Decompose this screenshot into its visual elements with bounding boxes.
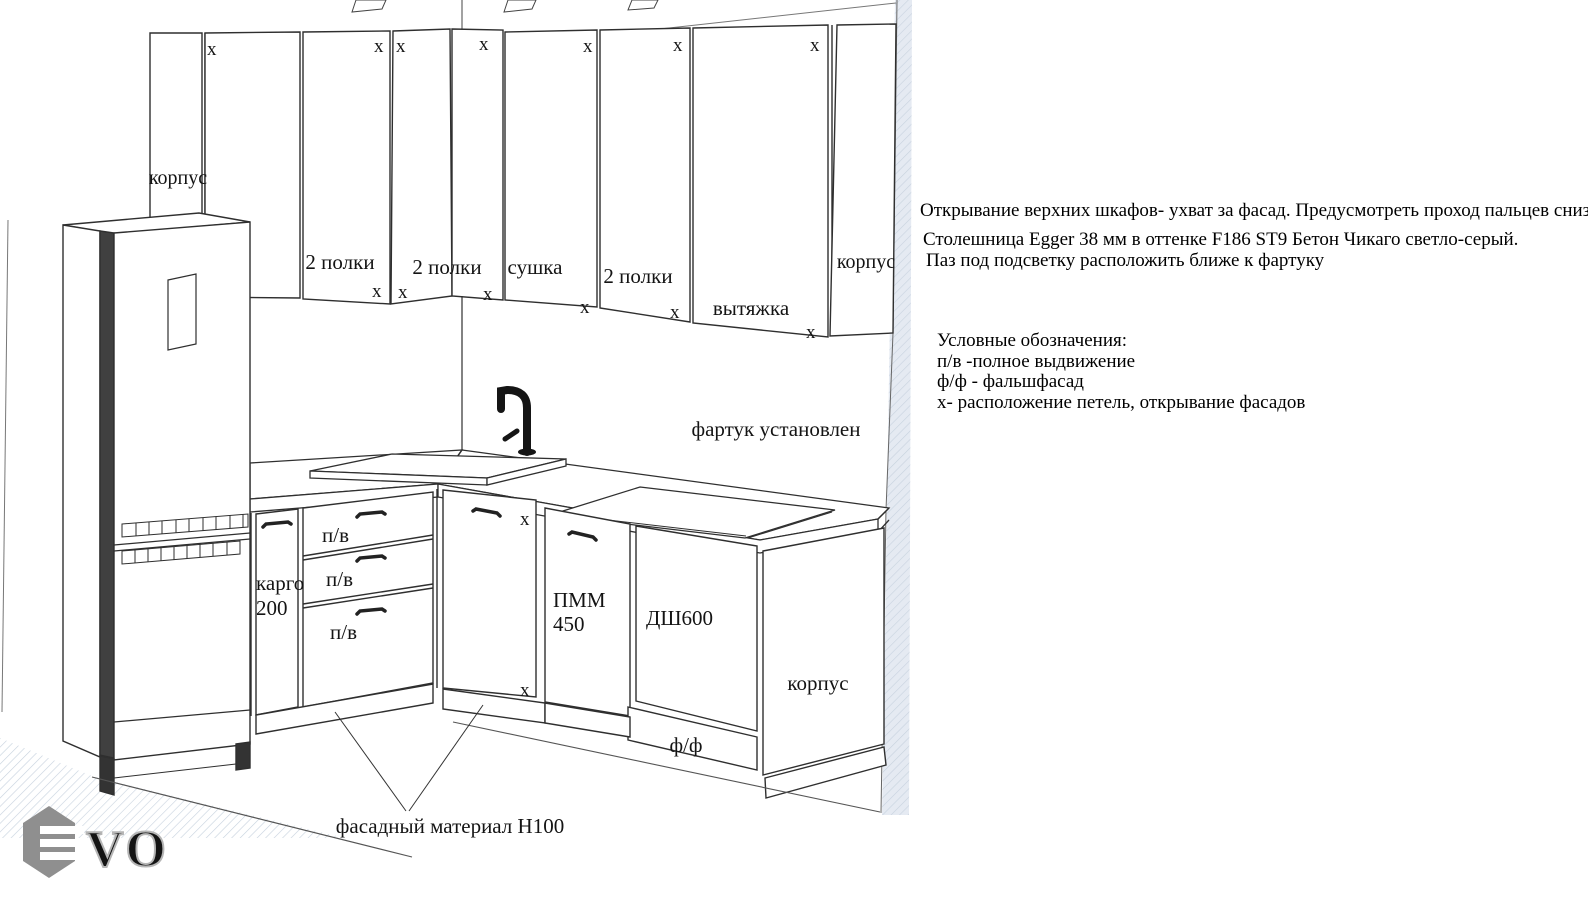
ceiling-fixture — [504, 0, 536, 12]
hinge-mark-icon: x — [673, 35, 683, 56]
upper-right-side-panel — [830, 24, 896, 336]
label-backsplash: фартук установлен — [692, 417, 861, 441]
ceiling-fixture — [352, 0, 386, 12]
legend-item-x: х- расположение петель, открывание фасад… — [937, 393, 1305, 414]
label-2shelves-right: 2 полки — [603, 264, 672, 288]
logo-vo-text: VO — [86, 821, 169, 878]
hinge-mark-icon: x — [396, 36, 406, 57]
kitchen-drawing-page: x x x x x x x x x x x x x корпус 2 полки… — [0, 0, 1588, 900]
label-false-front: ф/ф — [669, 733, 702, 757]
label-end-panel: корпус — [787, 671, 848, 695]
legend-item-pv: п/в -полное выдвижение — [937, 352, 1305, 373]
hinge-mark-icon: x — [372, 281, 382, 302]
note-countertop: Столешница Egger 38 мм в оттенке F186 ST… — [923, 229, 1518, 251]
label-cargo: карго — [256, 571, 304, 595]
fridge-foot — [236, 742, 250, 770]
label-cargo-size: 200 — [256, 596, 288, 620]
hinge-mark-icon: x — [520, 509, 530, 530]
hinge-mark-icon: x — [479, 34, 489, 55]
label-upper-right-panel: корпус — [837, 251, 895, 273]
fridge-side — [63, 225, 100, 757]
label-upper-left-panel: корпус — [149, 167, 207, 189]
fridge — [63, 213, 250, 795]
label-oven: ДШ600 — [646, 606, 713, 630]
kitchen-diagram: x x x x x x x x x x x x x корпус 2 полки… — [0, 0, 1588, 900]
faucet-icon — [501, 390, 536, 456]
hood-door — [693, 25, 828, 337]
label-drawer-pv: п/в — [330, 620, 357, 644]
hinge-mark-icon: x — [207, 39, 217, 60]
fridge-display — [168, 274, 196, 350]
hinge-mark-icon: x — [398, 282, 408, 303]
legend-block: Условные обозначения: п/в -полное выдвиж… — [937, 331, 1305, 413]
legend-item-ff: ф/ф - фальшфасад — [937, 372, 1305, 393]
label-hood: вытяжка — [713, 296, 790, 320]
label-drawer-pv: п/в — [322, 523, 349, 547]
label-dishwasher: ПММ — [553, 588, 606, 612]
ceiling-fixture — [628, 0, 658, 10]
hinge-mark-icon: x — [810, 35, 820, 56]
label-dishwasher-size: 450 — [553, 612, 585, 636]
plinth-callout: фасадный материал Н100 — [335, 705, 564, 838]
hinge-mark-icon: x — [374, 36, 384, 57]
hinge-mark-icon: x — [580, 297, 590, 318]
label-drawer-pv: п/в — [326, 567, 353, 591]
note-lighting-groove: Паз под подсветку расположить ближе к фа… — [926, 250, 1324, 272]
legend-title: Условные обозначения: — [937, 331, 1305, 352]
label-2shelves: 2 полки — [305, 250, 374, 274]
note-upper-cabinets: Открывание верхних шкафов- ухват за фаса… — [920, 200, 1588, 222]
hinge-mark-icon: x — [806, 322, 816, 343]
fridge-edge-stripe — [100, 231, 114, 758]
lower-end-panel — [763, 528, 884, 775]
hinge-mark-icon: x — [670, 302, 680, 323]
label-facade-material: фасадный материал Н100 — [336, 814, 564, 838]
label-dryer: сушка — [508, 255, 564, 279]
fridge-foot — [100, 756, 114, 795]
label-2shelves-corner: 2 полки — [412, 255, 481, 279]
upper-cabinets — [150, 24, 896, 337]
hinge-mark-icon: x — [520, 680, 530, 701]
hinge-mark-icon: x — [583, 36, 593, 57]
hinge-mark-icon: x — [483, 284, 493, 305]
